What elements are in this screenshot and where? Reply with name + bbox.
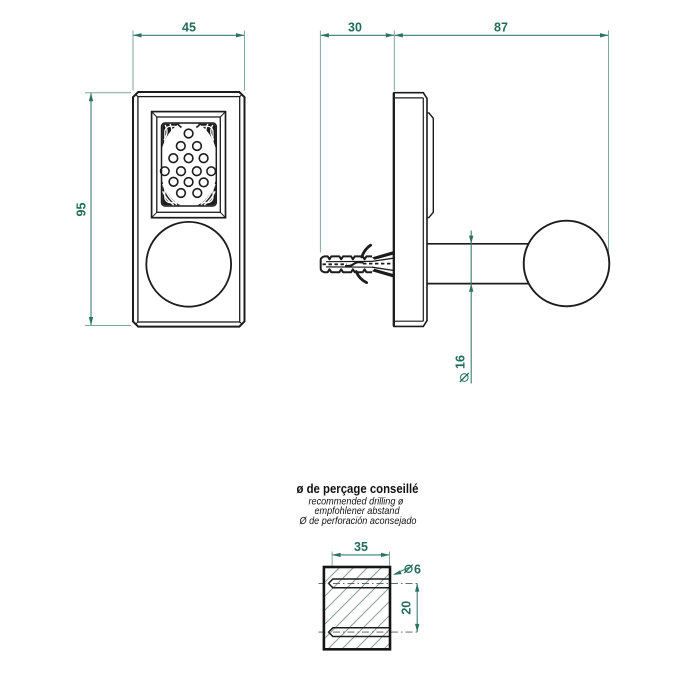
svg-text:6: 6	[414, 563, 421, 577]
svg-text:20: 20	[400, 601, 414, 615]
svg-text:87: 87	[494, 21, 508, 35]
svg-text:30: 30	[348, 21, 362, 35]
svg-text:Ø de perforación aconsejado: Ø de perforación aconsejado	[299, 516, 417, 527]
svg-text:ø de perçage conseillé: ø de perçage conseillé	[297, 482, 419, 496]
svg-text:35: 35	[354, 540, 368, 554]
svg-text:95: 95	[75, 203, 89, 217]
svg-text:45: 45	[182, 21, 196, 35]
svg-text:16: 16	[453, 355, 467, 369]
